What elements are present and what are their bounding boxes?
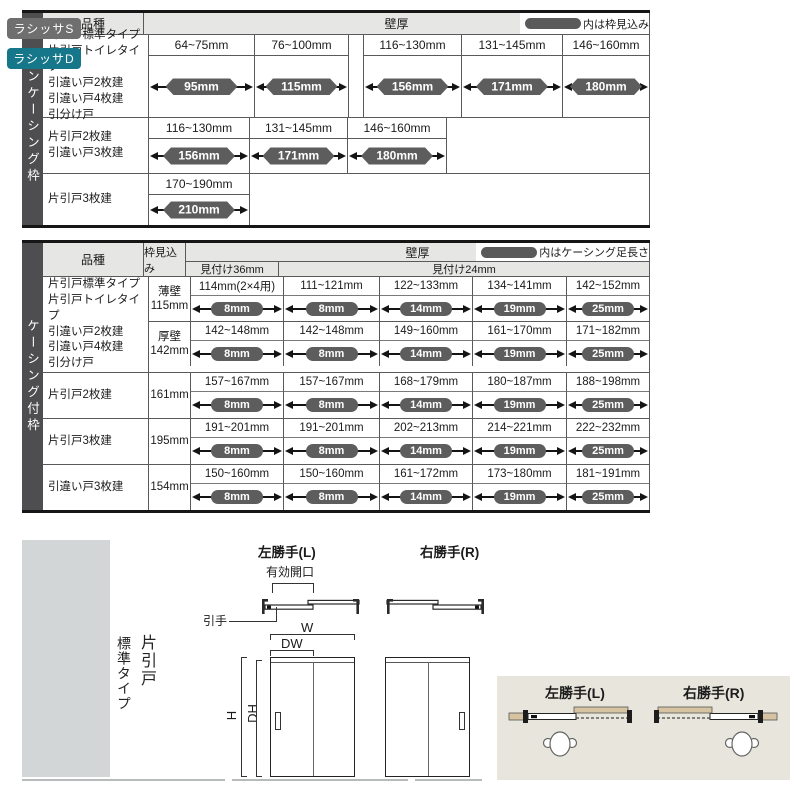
casing-leg-value: 25mm	[582, 444, 634, 458]
casing-leg-arrow: 14mm	[380, 438, 472, 464]
spacer-cell	[349, 35, 364, 117]
handing-plan-right-icon	[650, 705, 778, 727]
kind-line: 片引戸2枚建	[48, 388, 148, 404]
casing-leg-value: 8mm	[306, 347, 358, 361]
wall-cell: 114mm(2×4用) 8mm	[191, 277, 284, 321]
casing-leg-arrow: 19mm	[473, 296, 566, 321]
effective-opening-bracket	[272, 583, 314, 593]
wall-cell: 131~145mm 171mm	[462, 35, 563, 117]
casing-leg-value: 8mm	[306, 490, 358, 504]
table2-header-kind: 品種	[43, 243, 144, 276]
wall-cell: 76~100mm 115mm	[255, 35, 349, 117]
table1-group-1: 片引戸標準タイプ 片引戸トイレタイプ 引違い戸2枚建 引違い戸4枚建 引分け戸 …	[43, 35, 649, 118]
casing-leg-value: 25mm	[582, 347, 634, 361]
door-panel-split	[313, 662, 314, 776]
wall-range: 157~167mm	[284, 373, 379, 392]
wall-cell: 173~180mm 19mm	[473, 465, 567, 510]
wall-cell: 64~75mm 95mm	[149, 35, 255, 117]
type-line-1: 片引戸	[134, 634, 158, 759]
table2-subheader: 見付け36mm 見付け24mm	[186, 262, 649, 276]
wall-range: 142~152mm	[567, 277, 649, 296]
table1-g2-kinds: 片引戸2枚建 引違い戸3枚建	[43, 118, 149, 173]
table2-header-wall: 壁厚 内はケーシング足長さ	[186, 243, 649, 262]
frame-depth-capsule-icon	[525, 18, 581, 29]
table2-row-thinwall: 薄壁 115mm 114mm(2×4用) 8mm 111~121mm	[149, 277, 649, 322]
depth-line: 195mm	[150, 434, 188, 448]
casing-leg-value: 14mm	[400, 347, 452, 361]
wall-range: 170~190mm	[149, 174, 249, 195]
wall-cell: 122~133mm 14mm	[380, 277, 473, 321]
table1-legend: 内は枠見込み	[520, 13, 649, 34]
wall-range: 202~213mm	[380, 419, 472, 438]
casing-leg-arrow: 8mm	[284, 296, 379, 321]
kind-cell: 片引戸3枚建	[43, 419, 149, 464]
wall-cell: 202~213mm 14mm	[380, 419, 473, 464]
catalog-page: ノンケーシング枠 品種 壁厚 内は枠見込み 片引戸標準タイプ 片引戸トイレタイプ…	[0, 0, 800, 800]
cells: 114mm(2×4用) 8mm 111~121mm 8mm 122~133m	[191, 277, 649, 321]
depth-cell: 161mm	[149, 373, 191, 418]
frame-depth-value: 180mm	[361, 148, 433, 165]
wall-range: 161~172mm	[380, 465, 472, 484]
person-top-view-icon	[722, 728, 762, 760]
depth-cell: 195mm	[149, 419, 191, 464]
dim-dh-line	[256, 660, 262, 777]
wall-range: 149~160mm	[380, 322, 472, 341]
casing-leg-value: 14mm	[400, 444, 452, 458]
wall-range: 161~170mm	[473, 322, 566, 341]
table2-row-2panel: 片引戸2枚建 161mm 157~167mm 8mm 157~167mm 8mm	[43, 373, 649, 419]
wall-cell: 146~160mm 180mm	[348, 118, 447, 173]
wall-cell: 171~182mm 25mm	[567, 322, 649, 366]
wall-cell: 149~160mm 14mm	[380, 322, 473, 366]
pull-leader-line	[229, 621, 277, 622]
casing-leg-value: 19mm	[494, 444, 546, 458]
depth-line: 厚壁	[158, 330, 181, 344]
table1-g3-kinds: 片引戸3枚建	[43, 174, 149, 225]
wall-range: 150~160mm	[191, 465, 283, 484]
floor-line	[232, 779, 408, 781]
casing-leg-arrow: 19mm	[473, 392, 566, 418]
wall-range: 134~141mm	[473, 277, 566, 296]
casing-leg-arrow: 8mm	[284, 484, 379, 510]
dim-dw-line	[270, 650, 314, 656]
depth-line: 142mm	[150, 344, 188, 358]
table1-group-2: 片引戸2枚建 引違い戸3枚建 116~130mm 156mm 131~145mm…	[43, 118, 649, 174]
casing-leg-arrow: 25mm	[567, 296, 649, 321]
casing-leg-arrow: 25mm	[567, 392, 649, 418]
table1-wall-label: 壁厚	[384, 15, 408, 32]
kind-line: 引違い戸2枚建	[48, 325, 148, 341]
frame-depth-value: 95mm	[166, 78, 238, 95]
wall-cell: 181~191mm 25mm	[567, 465, 649, 510]
kind-line: 片引戸3枚建	[48, 434, 148, 450]
casing-leg-arrow: 8mm	[191, 341, 283, 366]
floor-line	[415, 779, 482, 781]
wall-range: 131~145mm	[462, 35, 562, 56]
casing-leg-value: 14mm	[400, 302, 452, 316]
frame-depth-arrow: 156mm	[364, 56, 461, 117]
frame-depth-value: 210mm	[163, 202, 235, 219]
cells: 191~201mm 8mm 191~201mm 8mm 202~213mm 14…	[191, 419, 649, 464]
wall-cell: 134~141mm 19mm	[473, 277, 567, 321]
pull-leader-riser	[276, 607, 277, 622]
wall-range: 146~160mm	[348, 118, 446, 139]
wall-range: 122~133mm	[380, 277, 472, 296]
casing-leg-arrow: 25mm	[567, 341, 649, 366]
series-panel	[22, 540, 110, 777]
table2-group-1: 片引戸標準タイプ 片引戸トイレタイプ 引違い戸2枚建 引違い戸4枚建 引分け戸 …	[43, 277, 649, 373]
casing-leg-value: 25mm	[582, 302, 634, 316]
wall-range: 222~232mm	[567, 419, 649, 438]
wall-cell: 142~152mm 25mm	[567, 277, 649, 321]
casing-leg-arrow: 19mm	[473, 341, 566, 366]
table1-g2-cols: 116~130mm 156mm 131~145mm 171mm 146~160m…	[149, 118, 649, 173]
cells: 150~160mm 8mm 150~160mm 8mm 161~172mm 14…	[191, 465, 649, 510]
wall-range: 114mm(2×4用)	[191, 277, 283, 296]
kind-line: 引違い戸2枚建	[48, 76, 148, 92]
pull-handle-label: 引手	[203, 612, 227, 629]
plan-view-right-icon	[382, 594, 494, 620]
casing-leg-value: 19mm	[494, 347, 546, 361]
wall-cell: 191~201mm 8mm	[284, 419, 380, 464]
cells: 142~148mm 8mm 142~148mm 8mm 149~160mm	[191, 322, 649, 366]
casing-leg-value: 8mm	[306, 302, 358, 316]
table1-body: 品種 壁厚 内は枠見込み 片引戸標準タイプ 片引戸トイレタイプ 引違い戸2枚建 …	[43, 13, 650, 225]
casing-leg-arrow: 8mm	[284, 438, 379, 464]
casing-leg-value: 19mm	[494, 490, 546, 504]
table2-body: 品種 枠見込み 壁厚 内はケーシング足長さ 見付け36mm 見付け24mm	[43, 243, 650, 510]
depth-line: 115mm	[151, 299, 189, 313]
wall-range: 116~130mm	[149, 118, 249, 139]
wall-range: 131~145mm	[250, 118, 347, 139]
subheader-36: 見付け36mm	[186, 262, 279, 276]
casing-leg-value: 8mm	[211, 444, 263, 458]
casing-leg-value: 8mm	[306, 398, 358, 412]
plan-view-left-icon	[252, 594, 364, 620]
casing-leg-value: 25mm	[582, 490, 634, 504]
casing-leg-value: 14mm	[400, 398, 452, 412]
frame-depth-arrow: 171mm	[462, 56, 562, 117]
door-pull-icon	[275, 712, 281, 730]
wall-range: 116~130mm	[364, 35, 461, 56]
table1-header-wall: 壁厚 内は枠見込み	[144, 13, 649, 34]
table1-g3-cols: 170~190mm 210mm	[149, 174, 649, 225]
frame-depth-arrow: 95mm	[149, 56, 254, 117]
wall-cell: 150~160mm 8mm	[191, 465, 284, 510]
wall-cell: 150~160mm 8mm	[284, 465, 380, 510]
wall-cell: 142~148mm 8mm	[284, 322, 380, 366]
empty-cell	[447, 118, 649, 173]
wall-cell: 214~221mm 19mm	[473, 419, 567, 464]
table2-header-depth: 枠見込み	[144, 243, 186, 276]
wall-range: 173~180mm	[473, 465, 566, 484]
wall-range: 142~148mm	[284, 322, 379, 341]
frame-depth-value: 156mm	[377, 78, 449, 95]
depth-cell: 厚壁 142mm	[149, 322, 191, 366]
casing-leg-arrow: 25mm	[567, 484, 649, 510]
wall-cell: 131~145mm 171mm	[250, 118, 348, 173]
door-elevation-right	[385, 657, 470, 777]
wall-cell: 142~148mm 8mm	[191, 322, 284, 366]
product-type-vertical-label: 片引戸 標準タイプ	[114, 634, 158, 759]
door-pull-icon	[459, 712, 465, 730]
casing-leg-capsule-icon	[481, 247, 537, 258]
plan-left-title: 左勝手(L)	[258, 541, 316, 561]
table-casing-frame: ケーシング付枠 品種 枠見込み 壁厚 内はケーシング足長さ 見付け36mm 見	[22, 240, 650, 513]
casing-leg-arrow: 8mm	[284, 341, 379, 366]
wall-cell: 188~198mm 25mm	[567, 373, 649, 418]
wall-cell: 191~201mm 8mm	[191, 419, 284, 464]
casing-leg-arrow: 14mm	[380, 484, 472, 510]
table1-side-label: ノンケーシング枠	[22, 13, 43, 225]
frame-depth-arrow: 180mm	[563, 56, 649, 117]
depth-line: 薄壁	[158, 285, 181, 299]
person-top-view-icon	[540, 728, 580, 760]
table2-side-label: ケーシング付枠	[22, 243, 43, 510]
casing-leg-arrow: 8mm	[191, 392, 283, 418]
depth-cell: 154mm	[149, 465, 191, 510]
table2-legend-text: 内はケーシング足長さ	[539, 244, 649, 260]
kind-cell: 引違い戸3枚建	[43, 465, 149, 510]
kind-line: 片引戸3枚建	[48, 192, 148, 208]
table2-row-thickwall: 厚壁 142mm 142~148mm 8mm 142~148mm	[149, 322, 649, 366]
frame-depth-value: 180mm	[570, 78, 642, 95]
casing-leg-arrow: 19mm	[473, 484, 566, 510]
depth-line: 154mm	[150, 480, 188, 494]
wall-range: 146~160mm	[563, 35, 649, 56]
wall-range: 111~121mm	[284, 277, 379, 296]
subheader-24: 見付け24mm	[279, 262, 649, 276]
wall-cell: 116~130mm 156mm	[364, 35, 462, 117]
frame-depth-value: 171mm	[476, 78, 548, 95]
wall-range: 191~201mm	[191, 419, 283, 438]
frame-depth-arrow: 171mm	[250, 139, 347, 173]
kind-line: 引分け戸	[48, 356, 148, 372]
casing-leg-value: 8mm	[306, 444, 358, 458]
dim-h-label: H	[224, 711, 239, 720]
empty-cell	[250, 174, 649, 225]
wall-range: 181~191mm	[567, 465, 649, 484]
table2-g1-kinds: 片引戸標準タイプ 片引戸トイレタイプ 引違い戸2枚建 引違い戸4枚建 引分け戸	[43, 277, 149, 372]
casing-leg-value: 8mm	[211, 347, 263, 361]
casing-leg-value: 14mm	[400, 490, 452, 504]
wall-range: 157~167mm	[191, 373, 283, 392]
wall-cell: 146~160mm 180mm	[563, 35, 649, 117]
wall-range: 168~179mm	[380, 373, 472, 392]
wall-range: 180~187mm	[473, 373, 566, 392]
casing-leg-arrow: 8mm	[191, 296, 283, 321]
dim-w-label: W	[301, 620, 313, 635]
casing-leg-arrow: 14mm	[380, 296, 472, 321]
badge-lasissa-d: ラシッサD	[7, 48, 81, 69]
badge-lasissa-s: ラシッサS	[7, 18, 81, 39]
table2-row-3panel: 片引戸3枚建 195mm 191~201mm 8mm 191~201mm 8mm	[43, 419, 649, 465]
wall-cell: 180~187mm 19mm	[473, 373, 567, 418]
casing-leg-arrow: 14mm	[380, 392, 472, 418]
frame-depth-value: 156mm	[163, 148, 235, 165]
casing-leg-value: 8mm	[211, 490, 263, 504]
casing-leg-arrow: 8mm	[191, 484, 283, 510]
casing-leg-arrow: 14mm	[380, 341, 472, 366]
kind-line: 引違い戸3枚建	[48, 480, 148, 496]
casing-leg-value: 25mm	[582, 398, 634, 412]
table2-header-right: 壁厚 内はケーシング足長さ 見付け36mm 見付け24mm	[186, 243, 649, 276]
wall-cell: 161~170mm 19mm	[473, 322, 567, 366]
table2-row-sliding3: 引違い戸3枚建 154mm 150~160mm 8mm 150~160mm 8m…	[43, 465, 649, 510]
table1-g1-cols: 64~75mm 95mm 76~100mm 115mm 116~130mm 15	[149, 35, 649, 117]
floor-line	[22, 779, 225, 781]
kind-cell: 片引戸2枚建	[43, 373, 149, 418]
frame-depth-value: 115mm	[266, 78, 338, 95]
dim-dw-label: DW	[281, 636, 303, 651]
wall-cell: 157~167mm 8mm	[284, 373, 380, 418]
table1-group-3: 片引戸3枚建 170~190mm 210mm	[43, 174, 649, 225]
wall-cell: 168~179mm 14mm	[380, 373, 473, 418]
handing-plan-left-icon	[508, 705, 636, 727]
door-elevation-left	[270, 657, 355, 777]
casing-leg-value: 19mm	[494, 302, 546, 316]
depth-cell: 薄壁 115mm	[149, 277, 191, 321]
kind-line: 片引戸標準タイプ	[48, 277, 148, 293]
frame-depth-arrow: 156mm	[149, 139, 249, 173]
wall-range: 142~148mm	[191, 322, 283, 341]
wall-range: 188~198mm	[567, 373, 649, 392]
kind-line: 片引戸2枚建	[48, 130, 148, 146]
wall-range: 191~201mm	[284, 419, 379, 438]
kind-line: 引違い戸4枚建	[48, 340, 148, 356]
wall-range: 171~182mm	[567, 322, 649, 341]
wall-cell: 116~130mm 156mm	[149, 118, 250, 173]
table2-g1-rows: 薄壁 115mm 114mm(2×4用) 8mm 111~121mm	[149, 277, 649, 372]
wall-cell: 157~167mm 8mm	[191, 373, 284, 418]
table2-legend: 内はケーシング足長さ	[476, 243, 649, 261]
frame-depth-arrow: 180mm	[348, 139, 446, 173]
depth-line: 161mm	[150, 388, 188, 402]
casing-leg-arrow: 8mm	[191, 438, 283, 464]
wall-range: 214~221mm	[473, 419, 566, 438]
plan-right-title: 右勝手(R)	[420, 541, 479, 561]
box-left-title: 左勝手(L)	[545, 683, 605, 703]
kind-line: 引違い戸3枚建	[48, 146, 148, 162]
casing-leg-value: 8mm	[211, 398, 263, 412]
frame-depth-arrow: 115mm	[255, 56, 348, 117]
cells: 157~167mm 8mm 157~167mm 8mm 168~179mm 14…	[191, 373, 649, 418]
wall-cell: 161~172mm 14mm	[380, 465, 473, 510]
casing-leg-value: 19mm	[494, 398, 546, 412]
wall-cell: 170~190mm 210mm	[149, 174, 250, 225]
kind-line: 引違い戸4枚建	[48, 92, 148, 108]
frame-depth-arrow: 210mm	[149, 195, 249, 225]
table2-header: 品種 枠見込み 壁厚 内はケーシング足長さ 見付け36mm 見付け24mm	[43, 243, 649, 277]
box-right-title: 右勝手(R)	[683, 683, 744, 703]
frame-depth-value: 171mm	[263, 148, 335, 165]
casing-leg-value: 8mm	[211, 302, 263, 316]
table1-legend-text: 内は枠見込み	[583, 16, 649, 32]
effective-opening-label: 有効開口	[266, 563, 314, 580]
type-line-2: 標準タイプ	[114, 636, 134, 759]
wall-range: 64~75mm	[149, 35, 254, 56]
casing-leg-arrow: 25mm	[567, 438, 649, 464]
table2-wall-label: 壁厚	[405, 244, 429, 261]
table-noncasing-frame: ノンケーシング枠 品種 壁厚 内は枠見込み 片引戸標準タイプ 片引戸トイレタイプ…	[22, 10, 650, 228]
kind-line: 片引戸トイレタイプ	[48, 293, 148, 325]
casing-leg-arrow: 19mm	[473, 438, 566, 464]
wall-cell: 111~121mm 8mm	[284, 277, 380, 321]
wall-range: 150~160mm	[284, 465, 379, 484]
casing-leg-arrow: 8mm	[284, 392, 379, 418]
wall-range: 76~100mm	[255, 35, 348, 56]
wall-cell: 222~232mm 25mm	[567, 419, 649, 464]
door-panel-split	[428, 662, 429, 776]
